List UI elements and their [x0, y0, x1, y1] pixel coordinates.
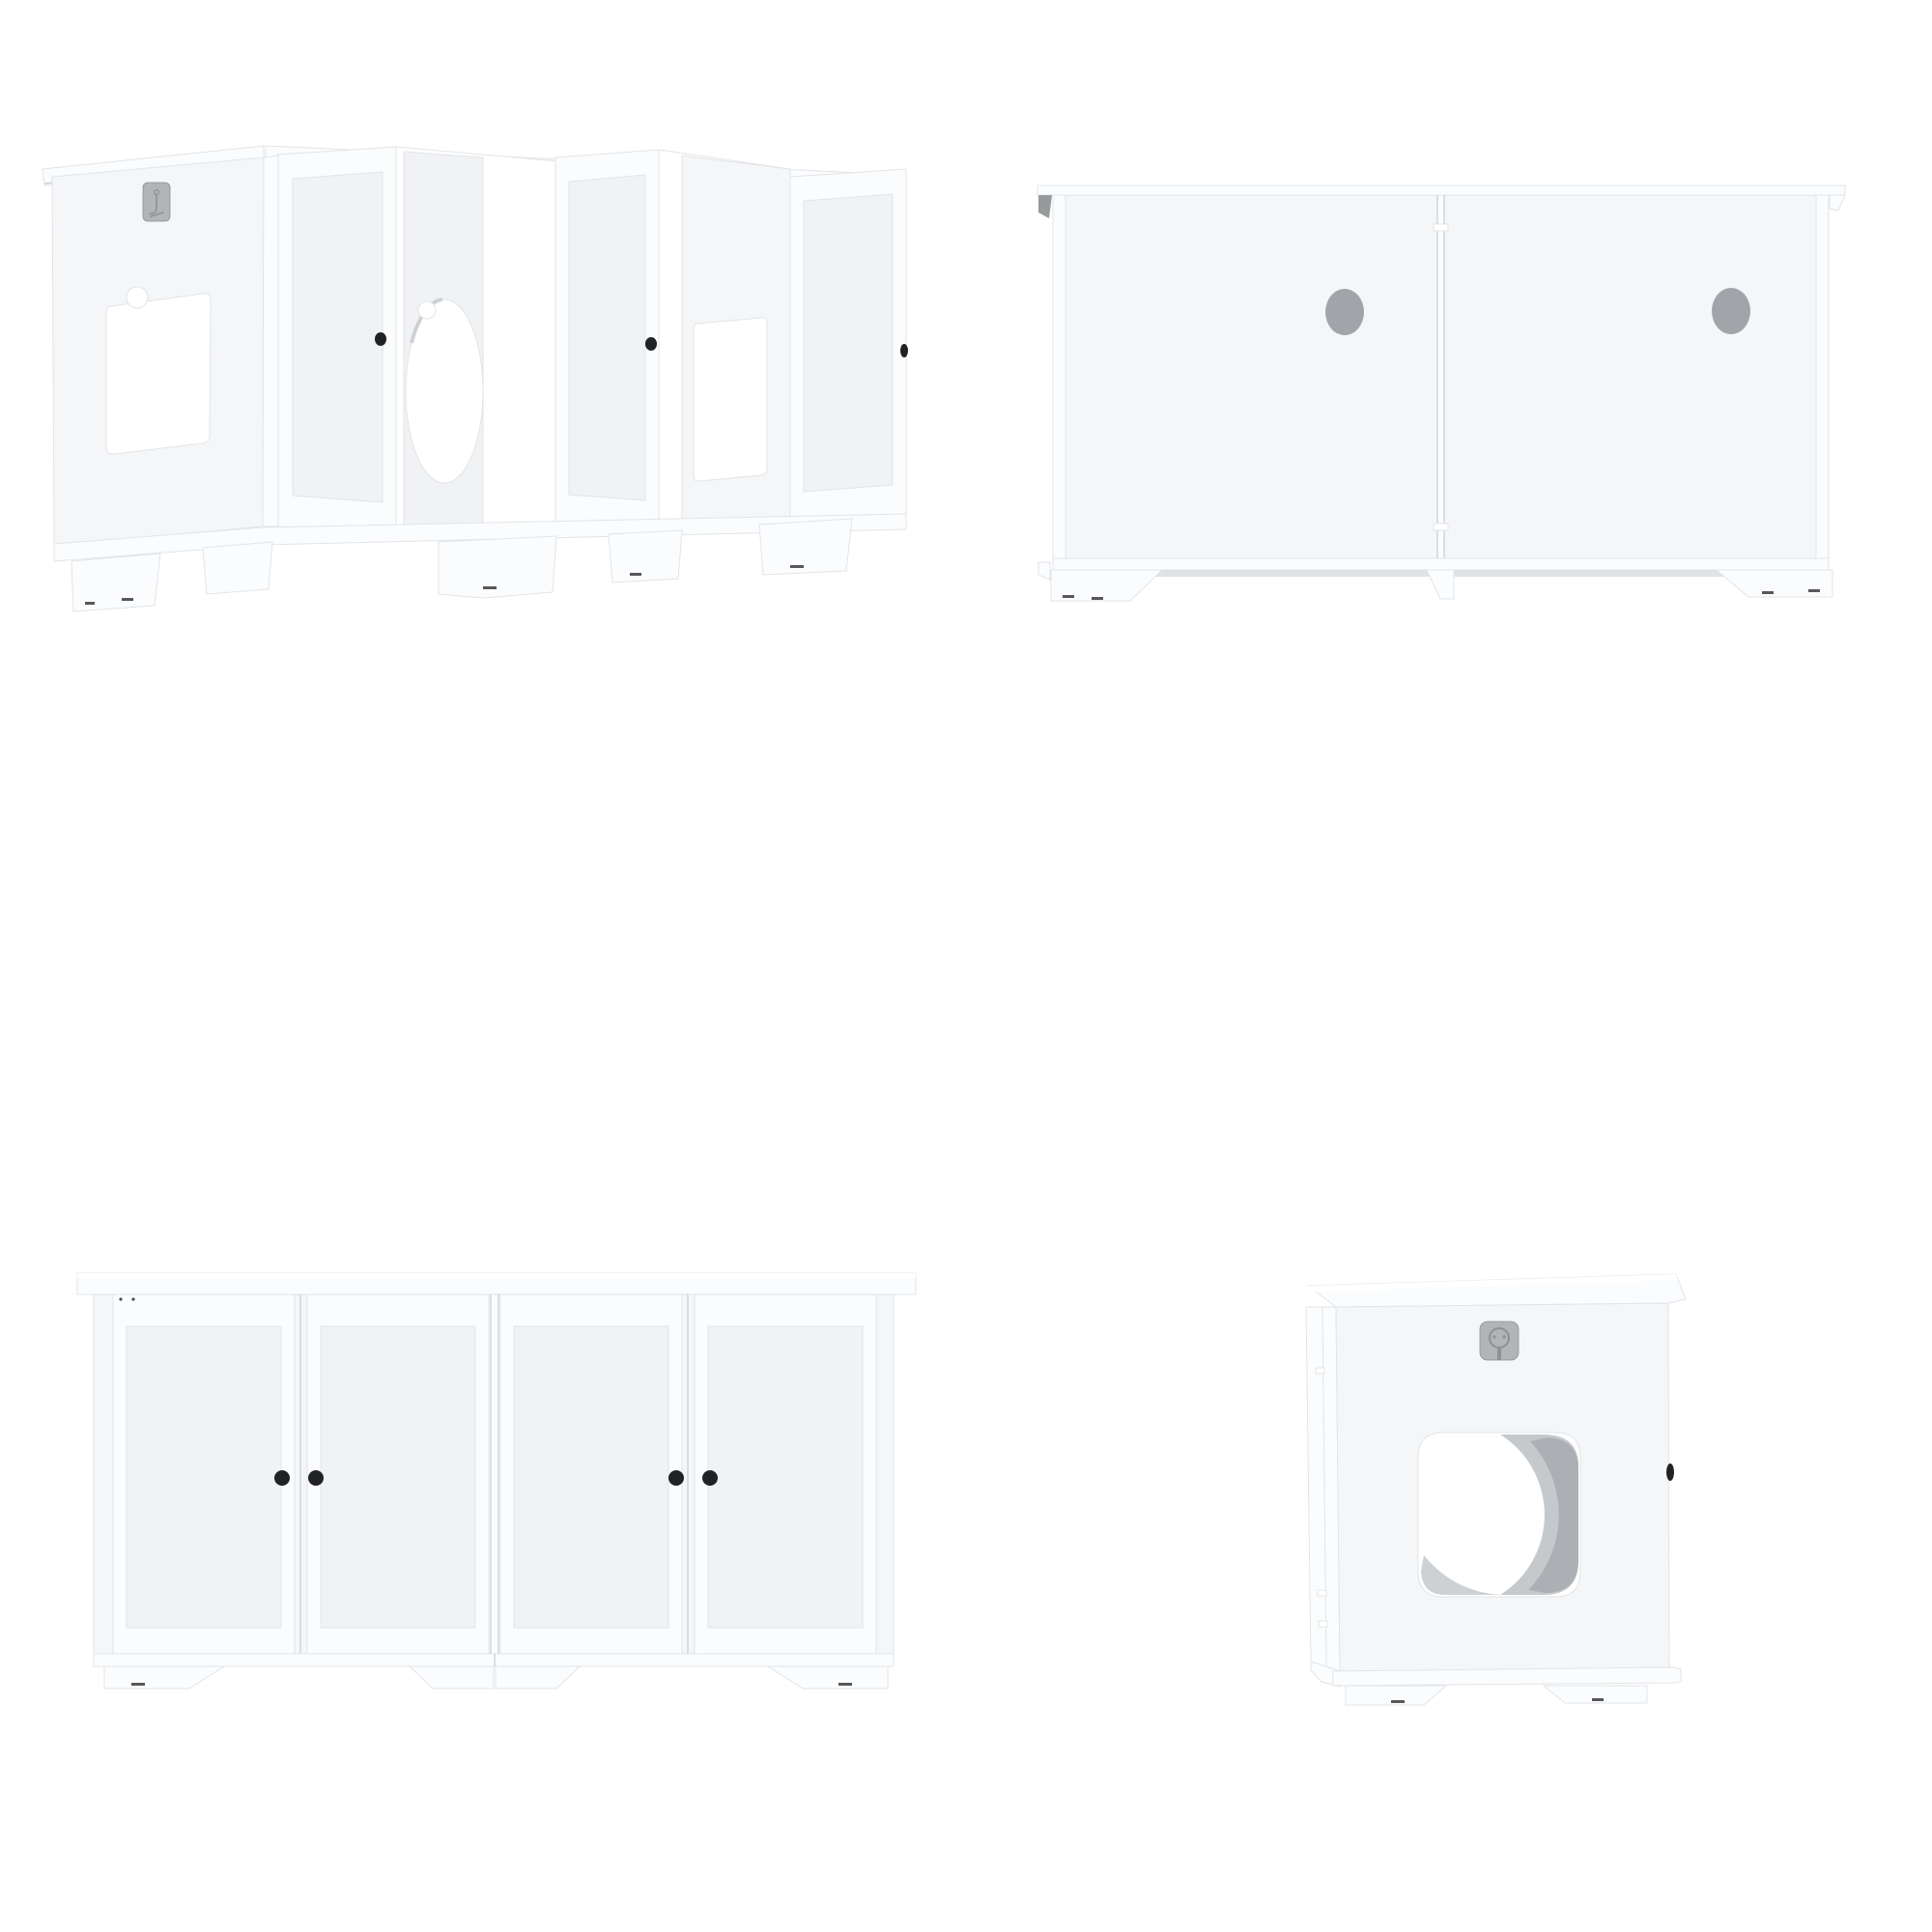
foot	[71, 554, 160, 611]
foot	[203, 542, 272, 594]
door-left-1	[113, 1294, 295, 1654]
hinge-dot	[131, 1297, 134, 1300]
hinge-mark	[1319, 1621, 1327, 1627]
left-base-tab	[1038, 562, 1050, 580]
right-side-edge	[1816, 195, 1829, 558]
top-panel	[1037, 185, 1845, 195]
door-knob	[308, 1470, 324, 1486]
foot	[410, 1666, 494, 1689]
hanging-hook-plate-icon	[143, 183, 170, 221]
grip-notch	[127, 287, 148, 308]
view-perspective-open-doors	[29, 101, 956, 623]
open-door-3	[790, 169, 908, 523]
foot	[768, 1666, 888, 1689]
hinge-mark	[1316, 1368, 1324, 1374]
unit-gap	[489, 1294, 500, 1654]
base-strip	[94, 1654, 894, 1666]
door-knob	[645, 337, 657, 351]
side-window-cutout	[106, 287, 211, 454]
left-corner-bracket	[1038, 195, 1052, 218]
view-back	[1036, 184, 1847, 604]
foot	[759, 519, 852, 575]
interior-right-section	[659, 150, 790, 532]
door-right-1	[500, 1294, 682, 1654]
feet	[104, 1666, 888, 1689]
foot	[1427, 570, 1454, 599]
view-front	[75, 1267, 918, 1692]
door-knob	[668, 1470, 684, 1486]
hinge-dot	[119, 1297, 122, 1300]
hinge-mark	[1434, 224, 1448, 231]
foot	[609, 530, 682, 582]
feet	[1346, 1686, 1647, 1705]
base-strip	[1053, 558, 1829, 570]
front-view-svg	[75, 1267, 918, 1692]
door-knob	[375, 332, 386, 346]
door-knob-edge	[900, 344, 908, 357]
side-view-svg	[1302, 1271, 1689, 1711]
foot	[1717, 570, 1833, 597]
door-left-2	[307, 1294, 489, 1654]
product-image-grid	[0, 0, 1932, 1932]
front-hinge-stile	[263, 156, 278, 526]
open-door-1	[278, 147, 396, 533]
hanging-hook-plate-icon	[1480, 1321, 1519, 1360]
entry-opening	[1418, 1433, 1580, 1597]
cord-hole-right	[1712, 288, 1750, 334]
back-view-svg	[1036, 184, 1847, 604]
door-knob	[274, 1470, 290, 1486]
right-end-window-cutout	[694, 318, 767, 481]
foot	[496, 1666, 580, 1689]
foot	[439, 536, 556, 598]
right-corner-bracket	[1830, 195, 1845, 211]
cord-hole-left	[1325, 289, 1364, 335]
door-knob-edge	[1666, 1463, 1674, 1481]
door-knob	[702, 1470, 718, 1486]
front-edge-strip	[1306, 1307, 1340, 1687]
hinge-mark	[1434, 524, 1448, 530]
foot	[104, 1666, 224, 1689]
interior-middle-section	[396, 147, 558, 533]
left-side-edge	[1053, 195, 1065, 558]
perspective-view-svg	[29, 101, 956, 623]
door-right-2	[695, 1294, 876, 1654]
top-panel-highlight	[77, 1273, 916, 1278]
open-door-2	[555, 150, 659, 532]
view-side	[1302, 1271, 1689, 1711]
hinge-mark	[1318, 1590, 1326, 1596]
small-hole	[418, 301, 436, 319]
